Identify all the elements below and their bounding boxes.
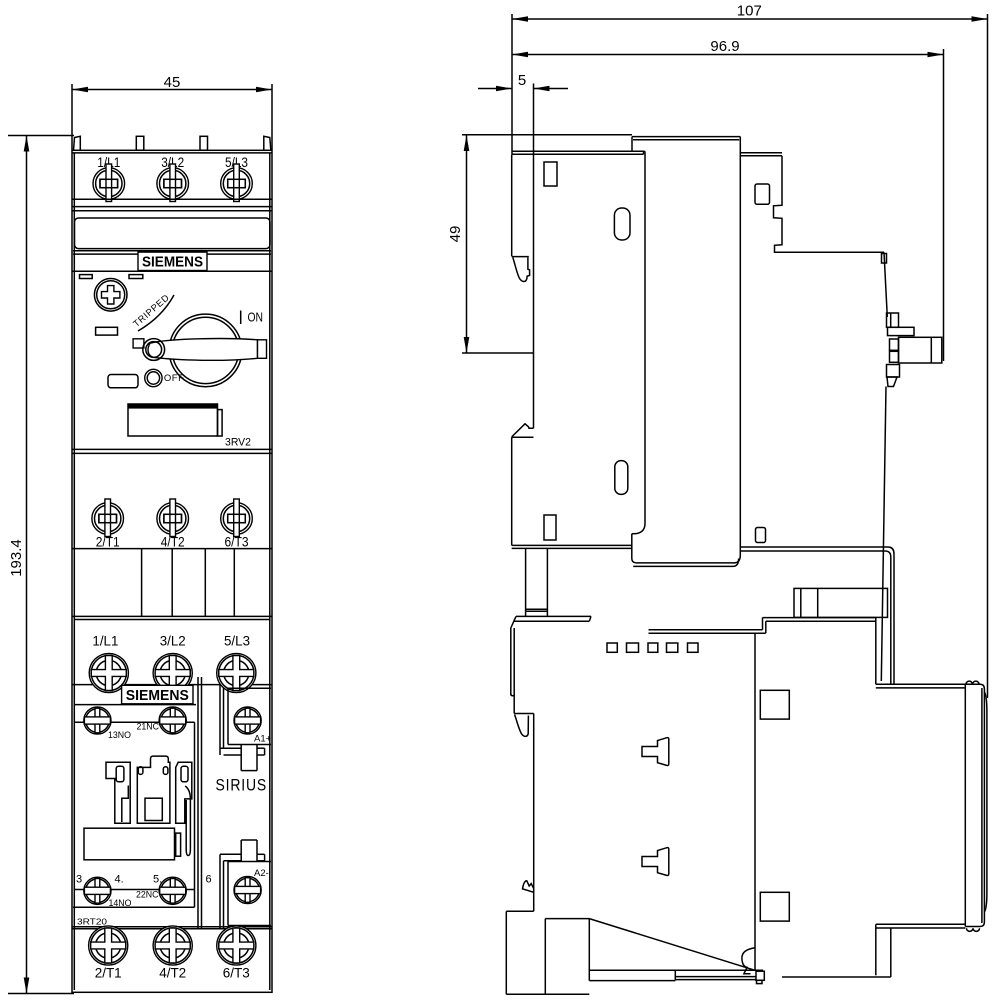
svg-text:96.9: 96.9 (710, 38, 739, 55)
svg-text:2/T1: 2/T1 (95, 966, 122, 981)
svg-text:107: 107 (737, 3, 762, 20)
svg-text:6/T3: 6/T3 (223, 966, 250, 981)
svg-text:1/L1: 1/L1 (92, 634, 118, 649)
svg-text:49: 49 (447, 226, 464, 243)
svg-text:22NC: 22NC (136, 889, 159, 899)
svg-text:4/T2: 4/T2 (161, 535, 185, 550)
svg-text:5: 5 (518, 72, 526, 89)
svg-text:6/T3: 6/T3 (225, 535, 249, 550)
svg-text:6: 6 (206, 874, 212, 886)
svg-text:SIEMENS: SIEMENS (142, 255, 203, 271)
svg-text:A2-: A2- (254, 868, 269, 879)
svg-text:193.4: 193.4 (8, 539, 25, 577)
svg-text:5/L3: 5/L3 (224, 634, 250, 649)
svg-text:SIRIUS: SIRIUS (216, 776, 268, 795)
svg-text:3RT20: 3RT20 (77, 917, 107, 927)
svg-text:4/T2: 4/T2 (159, 966, 186, 981)
svg-text:ON: ON (248, 310, 264, 325)
svg-text:2/T1: 2/T1 (96, 535, 120, 550)
svg-text:3: 3 (76, 874, 82, 886)
svg-text:3RV2: 3RV2 (225, 436, 251, 448)
svg-text:SIEMENS: SIEMENS (126, 688, 189, 704)
svg-text:3/L2: 3/L2 (160, 634, 186, 649)
svg-text:45: 45 (164, 74, 181, 91)
svg-text:13NO: 13NO (108, 730, 131, 740)
svg-text:14NO: 14NO (109, 898, 132, 908)
svg-text:OFF: OFF (164, 373, 184, 384)
svg-text:A1+: A1+ (254, 734, 272, 745)
svg-text:4.: 4. (115, 874, 124, 886)
svg-text:21NC: 21NC (137, 722, 160, 732)
